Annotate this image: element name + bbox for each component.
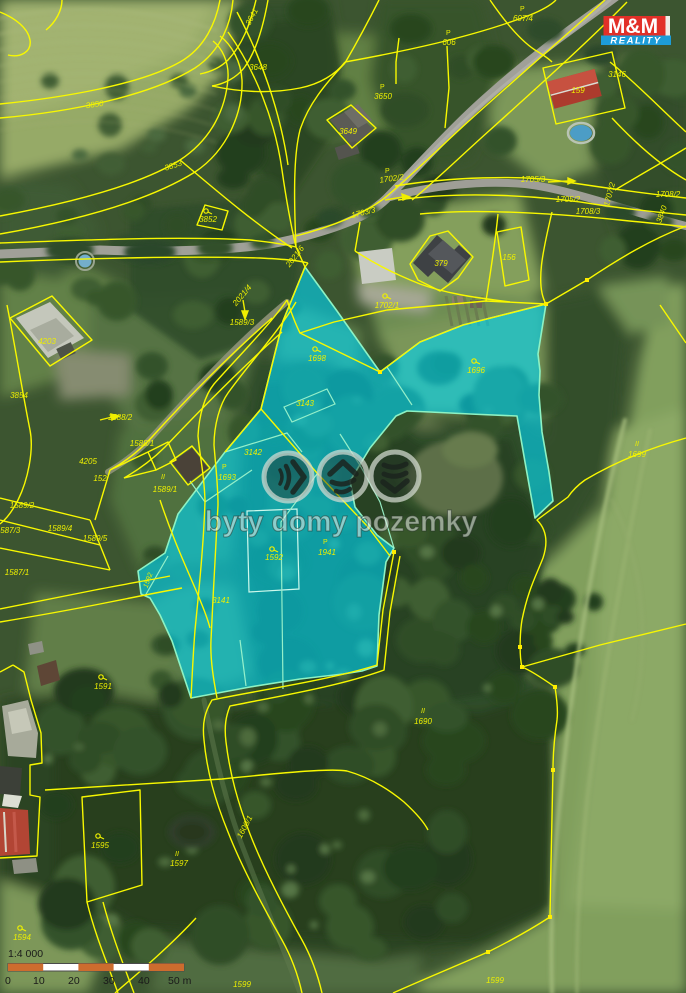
svg-text:1941: 1941 (318, 548, 336, 557)
svg-text:152: 152 (93, 474, 107, 483)
svg-text:606: 606 (442, 38, 456, 47)
svg-text:40: 40 (138, 975, 150, 987)
svg-text:1708/2: 1708/2 (656, 190, 681, 199)
svg-text:607/4: 607/4 (513, 14, 534, 23)
svg-text:1599: 1599 (486, 976, 504, 985)
svg-text:II: II (175, 851, 179, 858)
svg-text:1592: 1592 (265, 553, 283, 562)
svg-text:20: 20 (68, 975, 80, 987)
svg-text:1702/1: 1702/1 (375, 301, 399, 310)
svg-text:1587/3: 1587/3 (0, 526, 21, 535)
svg-text:II: II (161, 474, 165, 481)
svg-text:byty domy pozemky: byty domy pozemky (205, 506, 478, 538)
svg-text:3143: 3143 (296, 399, 314, 408)
svg-text:1693: 1693 (218, 473, 236, 482)
svg-text:1588/1: 1588/1 (130, 439, 154, 448)
svg-text:P: P (380, 84, 385, 91)
svg-text:3650: 3650 (374, 92, 392, 101)
svg-text:3648: 3648 (249, 63, 267, 72)
svg-text:1589/1: 1589/1 (153, 485, 177, 494)
svg-text:4203: 4203 (38, 337, 56, 346)
svg-text:1708/3: 1708/3 (576, 207, 601, 216)
svg-text:1705/2: 1705/2 (556, 195, 581, 204)
svg-text:1589/2: 1589/2 (10, 501, 35, 510)
svg-text:3649: 3649 (339, 127, 357, 136)
svg-text:1589/5: 1589/5 (83, 534, 108, 543)
svg-text:10: 10 (33, 975, 45, 987)
svg-text:1587/1: 1587/1 (5, 568, 29, 577)
svg-text:379: 379 (434, 259, 448, 268)
svg-text:1696: 1696 (467, 366, 485, 375)
svg-text:1690: 1690 (414, 717, 432, 726)
svg-text:1589/3: 1589/3 (230, 318, 255, 327)
svg-text:1698: 1698 (308, 354, 326, 363)
svg-text:II: II (421, 708, 425, 715)
svg-text:P: P (323, 539, 328, 546)
svg-text:P: P (222, 464, 227, 471)
svg-text:0: 0 (5, 975, 11, 987)
svg-text:1595: 1595 (91, 841, 109, 850)
svg-text:1594: 1594 (13, 933, 31, 942)
svg-text:P: P (520, 6, 525, 13)
svg-text:3141: 3141 (212, 596, 230, 605)
svg-text:4205: 4205 (79, 457, 97, 466)
svg-text:II: II (635, 441, 639, 448)
svg-text:P: P (385, 168, 390, 175)
svg-text:1588/2: 1588/2 (108, 413, 133, 422)
svg-text:1591: 1591 (94, 682, 112, 691)
svg-text:50 m: 50 m (168, 975, 192, 987)
svg-text:3852: 3852 (199, 215, 217, 224)
svg-text:3142: 3142 (244, 448, 262, 457)
svg-text:1705/3: 1705/3 (521, 175, 546, 184)
svg-text:REALITY: REALITY (610, 36, 661, 47)
svg-text:3146: 3146 (608, 70, 626, 79)
svg-text:1599: 1599 (233, 980, 251, 989)
svg-text:P: P (446, 30, 451, 37)
svg-text:30: 30 (103, 975, 115, 987)
svg-text:1597: 1597 (170, 859, 188, 868)
svg-text:156: 156 (502, 253, 516, 262)
svg-text:1589/4: 1589/4 (48, 524, 73, 533)
svg-text:159: 159 (571, 86, 585, 95)
svg-text:1699: 1699 (628, 450, 646, 459)
svg-text:3854: 3854 (10, 391, 28, 400)
svg-text:1:4 000: 1:4 000 (8, 948, 43, 960)
